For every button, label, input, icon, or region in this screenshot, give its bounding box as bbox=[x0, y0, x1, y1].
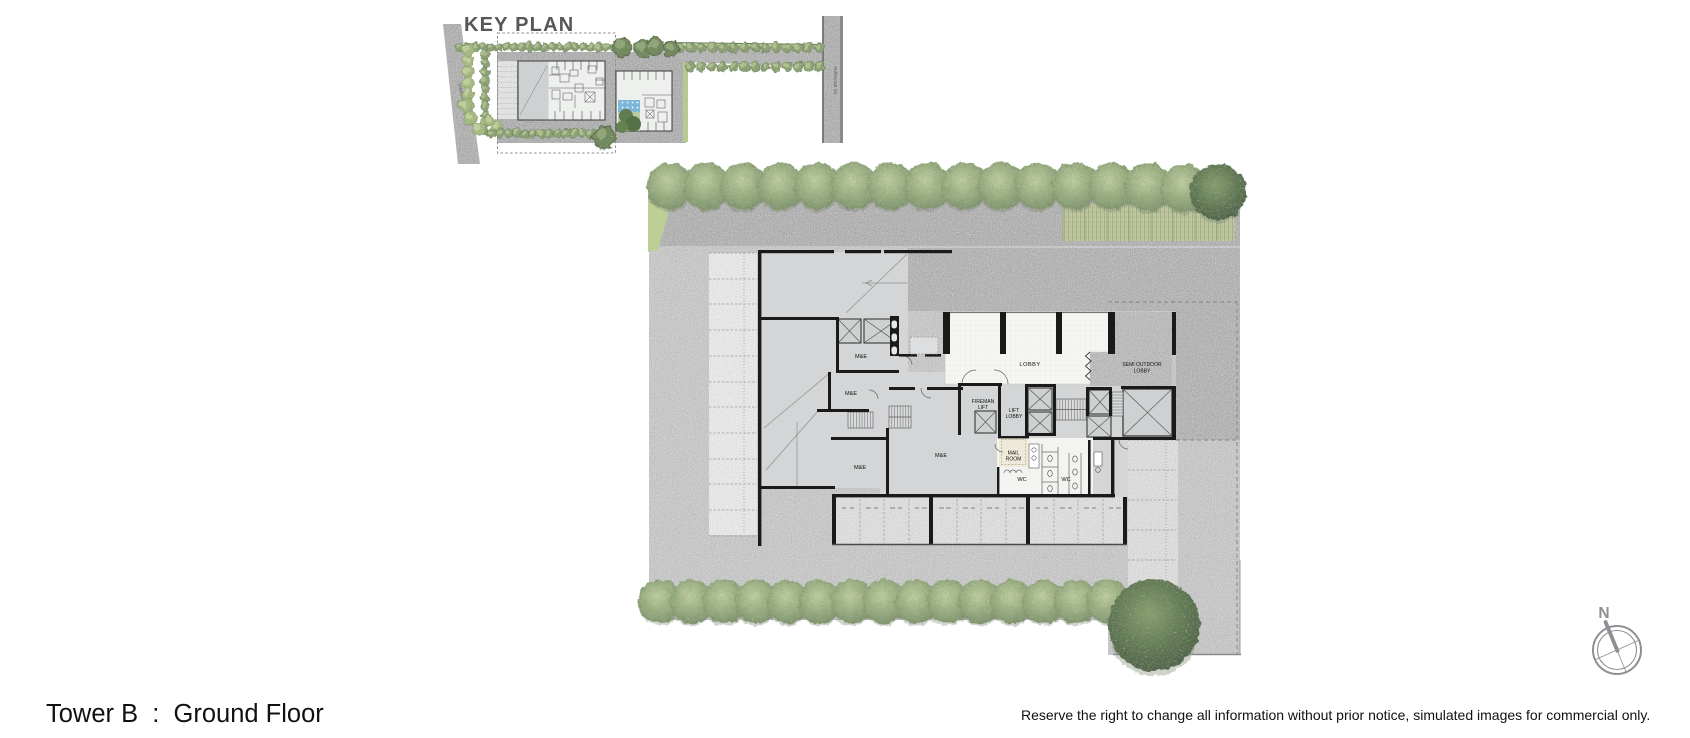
svg-text:LOBBY: LOBBY bbox=[1134, 369, 1151, 375]
svg-text:ROOM: ROOM bbox=[1006, 457, 1022, 463]
svg-text:WC: WC bbox=[1061, 477, 1070, 483]
svg-text:M&E: M&E bbox=[845, 391, 857, 397]
svg-text:Tower B : Ground Floor: Tower B : Ground Floor bbox=[46, 700, 324, 728]
svg-text:LOBBY: LOBBY bbox=[1006, 414, 1023, 420]
svg-text:Reserve the right to change al: Reserve the right to change all informat… bbox=[1021, 707, 1650, 723]
svg-text:M&E: M&E bbox=[855, 354, 867, 360]
svg-text:WC: WC bbox=[1017, 477, 1026, 483]
svg-text:LIFT: LIFT bbox=[978, 405, 988, 411]
svg-text:M&E: M&E bbox=[854, 465, 866, 471]
svg-text:Sukhumvit 19: Sukhumvit 19 bbox=[833, 66, 838, 94]
svg-text:M&E: M&E bbox=[935, 453, 947, 459]
svg-text:LOBBY: LOBBY bbox=[1019, 362, 1040, 368]
svg-text:SEMI OUTDOOR: SEMI OUTDOOR bbox=[1122, 362, 1162, 368]
svg-text:N: N bbox=[1598, 605, 1609, 622]
